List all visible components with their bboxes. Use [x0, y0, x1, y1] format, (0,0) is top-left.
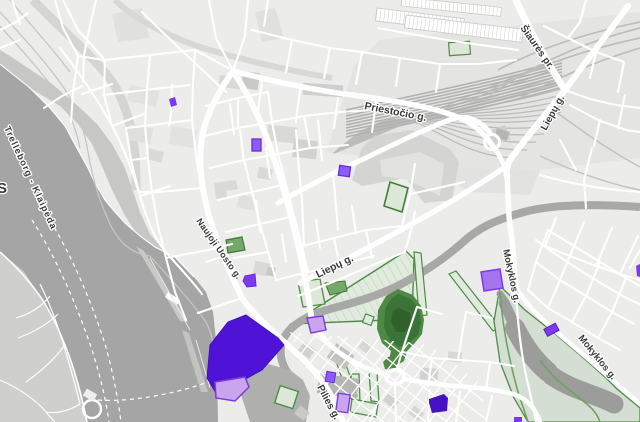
svg-text:S: S	[0, 180, 7, 197]
